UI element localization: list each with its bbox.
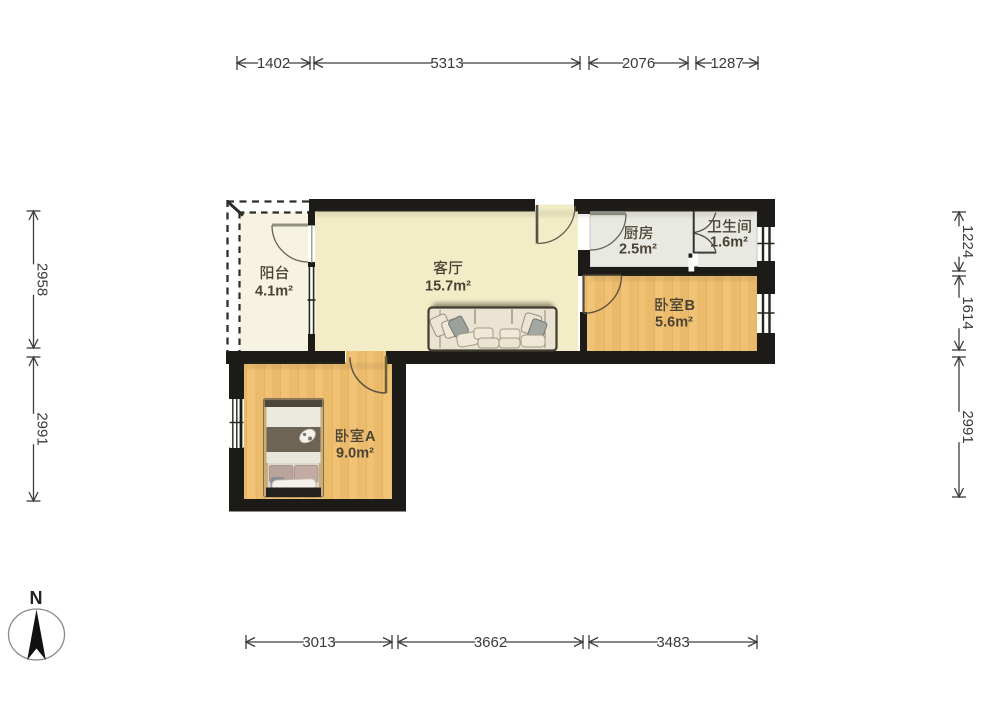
svg-text:2991: 2991 bbox=[34, 412, 51, 445]
svg-text:9.0m²: 9.0m² bbox=[336, 446, 374, 462]
svg-text:2958: 2958 bbox=[34, 263, 51, 296]
svg-text:5.6m²: 5.6m² bbox=[655, 315, 693, 331]
svg-text:A: A bbox=[365, 429, 376, 445]
svg-text:2.5m²: 2.5m² bbox=[619, 242, 657, 258]
svg-text:3662: 3662 bbox=[474, 634, 507, 651]
svg-text:1.6m²: 1.6m² bbox=[710, 235, 748, 251]
svg-text:5313: 5313 bbox=[430, 55, 463, 72]
svg-text:1287: 1287 bbox=[710, 55, 743, 72]
svg-text:3013: 3013 bbox=[302, 634, 335, 651]
svg-text:B: B bbox=[685, 298, 695, 314]
svg-text:3483: 3483 bbox=[656, 634, 689, 651]
svg-text:15.7m²: 15.7m² bbox=[425, 279, 471, 295]
svg-text:1614: 1614 bbox=[959, 296, 976, 329]
svg-text:1224: 1224 bbox=[959, 225, 976, 258]
svg-text:2076: 2076 bbox=[622, 55, 655, 72]
svg-text:N: N bbox=[30, 588, 43, 608]
svg-text:2991: 2991 bbox=[959, 410, 976, 443]
svg-text:4.1m²: 4.1m² bbox=[255, 284, 293, 300]
svg-text:1402: 1402 bbox=[257, 55, 290, 72]
